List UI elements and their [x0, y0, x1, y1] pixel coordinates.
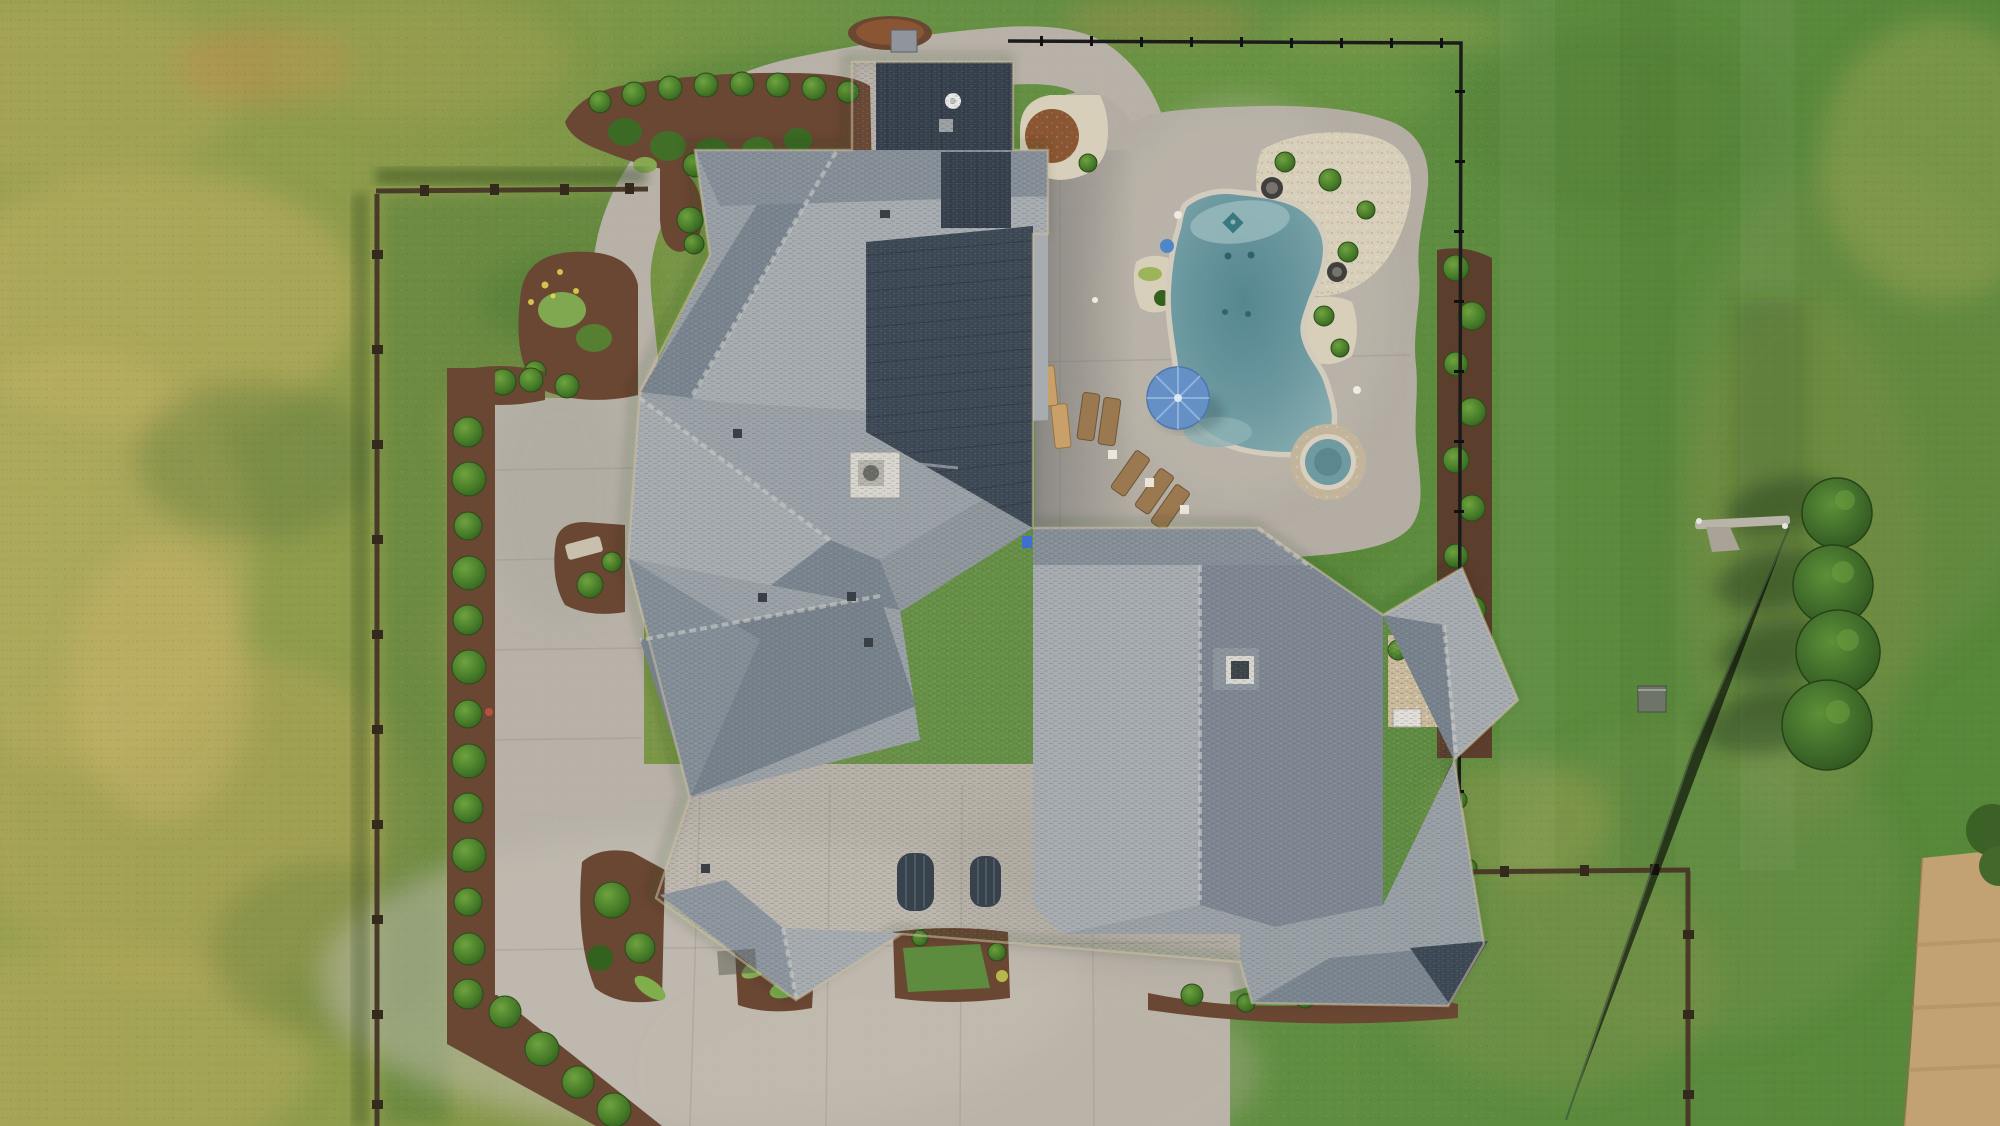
front-lawn-patch [903, 944, 990, 992]
pool-float [1160, 239, 1174, 253]
spa-water-deep [1314, 448, 1342, 476]
yellow-plant [996, 970, 1008, 982]
pool-drain [1248, 252, 1255, 259]
chimney [891, 30, 917, 52]
pool-drain [1222, 309, 1228, 315]
utility-box [1638, 686, 1666, 712]
bush [1314, 306, 1334, 326]
side-table [1145, 478, 1154, 487]
bush [1331, 339, 1349, 357]
side-table [1108, 450, 1117, 459]
fence-shadow [352, 194, 368, 1126]
entry-left-bed [580, 850, 665, 1002]
pool-drain [1245, 311, 1251, 317]
diamond-center [1231, 220, 1236, 225]
red-marker [485, 708, 493, 716]
bush [519, 368, 543, 392]
bush [1079, 154, 1097, 172]
side-table [1180, 505, 1189, 514]
bush [1181, 984, 1203, 1006]
bush [577, 572, 603, 598]
fence-shadow [376, 168, 646, 184]
deck-light [1353, 386, 1361, 394]
deck-light [1092, 297, 1098, 303]
grass-plant [1138, 267, 1162, 281]
aerial-scene [0, 0, 2000, 1126]
fire-bowl-center [1266, 182, 1278, 194]
pool-drain [1225, 253, 1232, 260]
aerial-photo [0, 0, 2000, 1126]
blue-object [1022, 536, 1032, 548]
bush [988, 943, 1006, 961]
fire-bowl-center [1332, 267, 1342, 277]
plowed-field [1904, 850, 2000, 1126]
deck-light [1174, 211, 1182, 219]
